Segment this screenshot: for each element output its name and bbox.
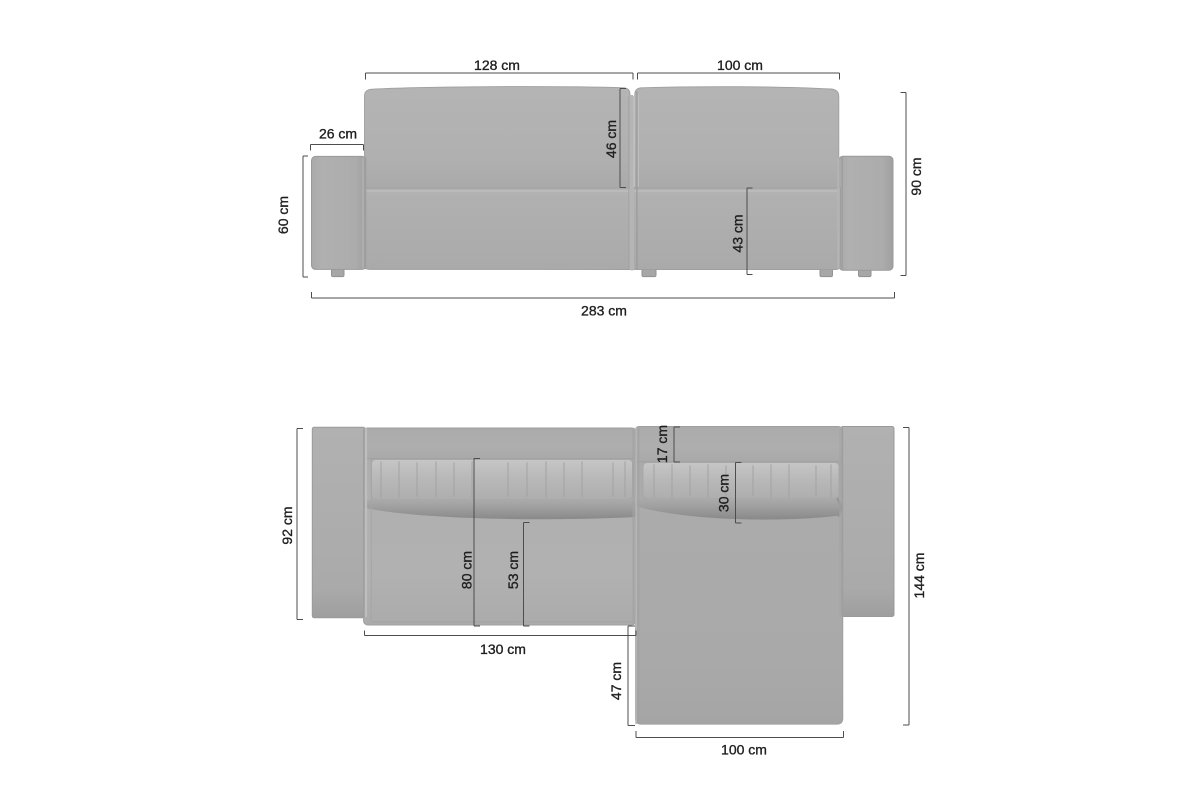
svg-text:53 cm: 53 cm: [505, 551, 521, 589]
svg-text:144 cm: 144 cm: [911, 553, 927, 599]
svg-text:283 cm: 283 cm: [581, 302, 627, 318]
svg-text:80 cm: 80 cm: [459, 551, 475, 589]
svg-text:100 cm: 100 cm: [721, 741, 767, 757]
svg-text:130 cm: 130 cm: [480, 641, 526, 657]
svg-text:43 cm: 43 cm: [730, 214, 746, 252]
svg-text:26 cm: 26 cm: [319, 126, 357, 142]
svg-text:46 cm: 46 cm: [603, 120, 619, 158]
svg-text:100 cm: 100 cm: [717, 57, 763, 73]
svg-text:60 cm: 60 cm: [275, 196, 291, 234]
svg-text:92 cm: 92 cm: [279, 506, 295, 544]
svg-text:47 cm: 47 cm: [608, 662, 624, 700]
svg-text:128 cm: 128 cm: [474, 57, 520, 73]
svg-text:30 cm: 30 cm: [716, 474, 732, 512]
svg-text:17 cm: 17 cm: [654, 425, 670, 463]
svg-text:90 cm: 90 cm: [908, 157, 924, 195]
